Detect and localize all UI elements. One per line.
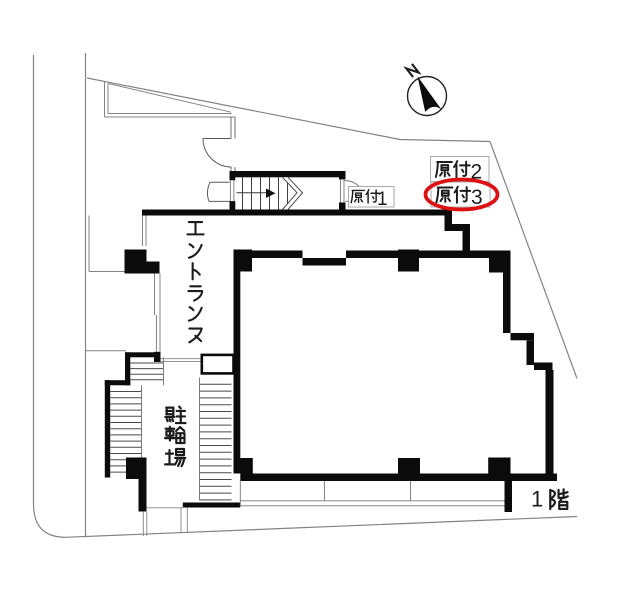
svg-text:1: 1 bbox=[531, 487, 543, 512]
svg-text:1: 1 bbox=[377, 189, 388, 210]
